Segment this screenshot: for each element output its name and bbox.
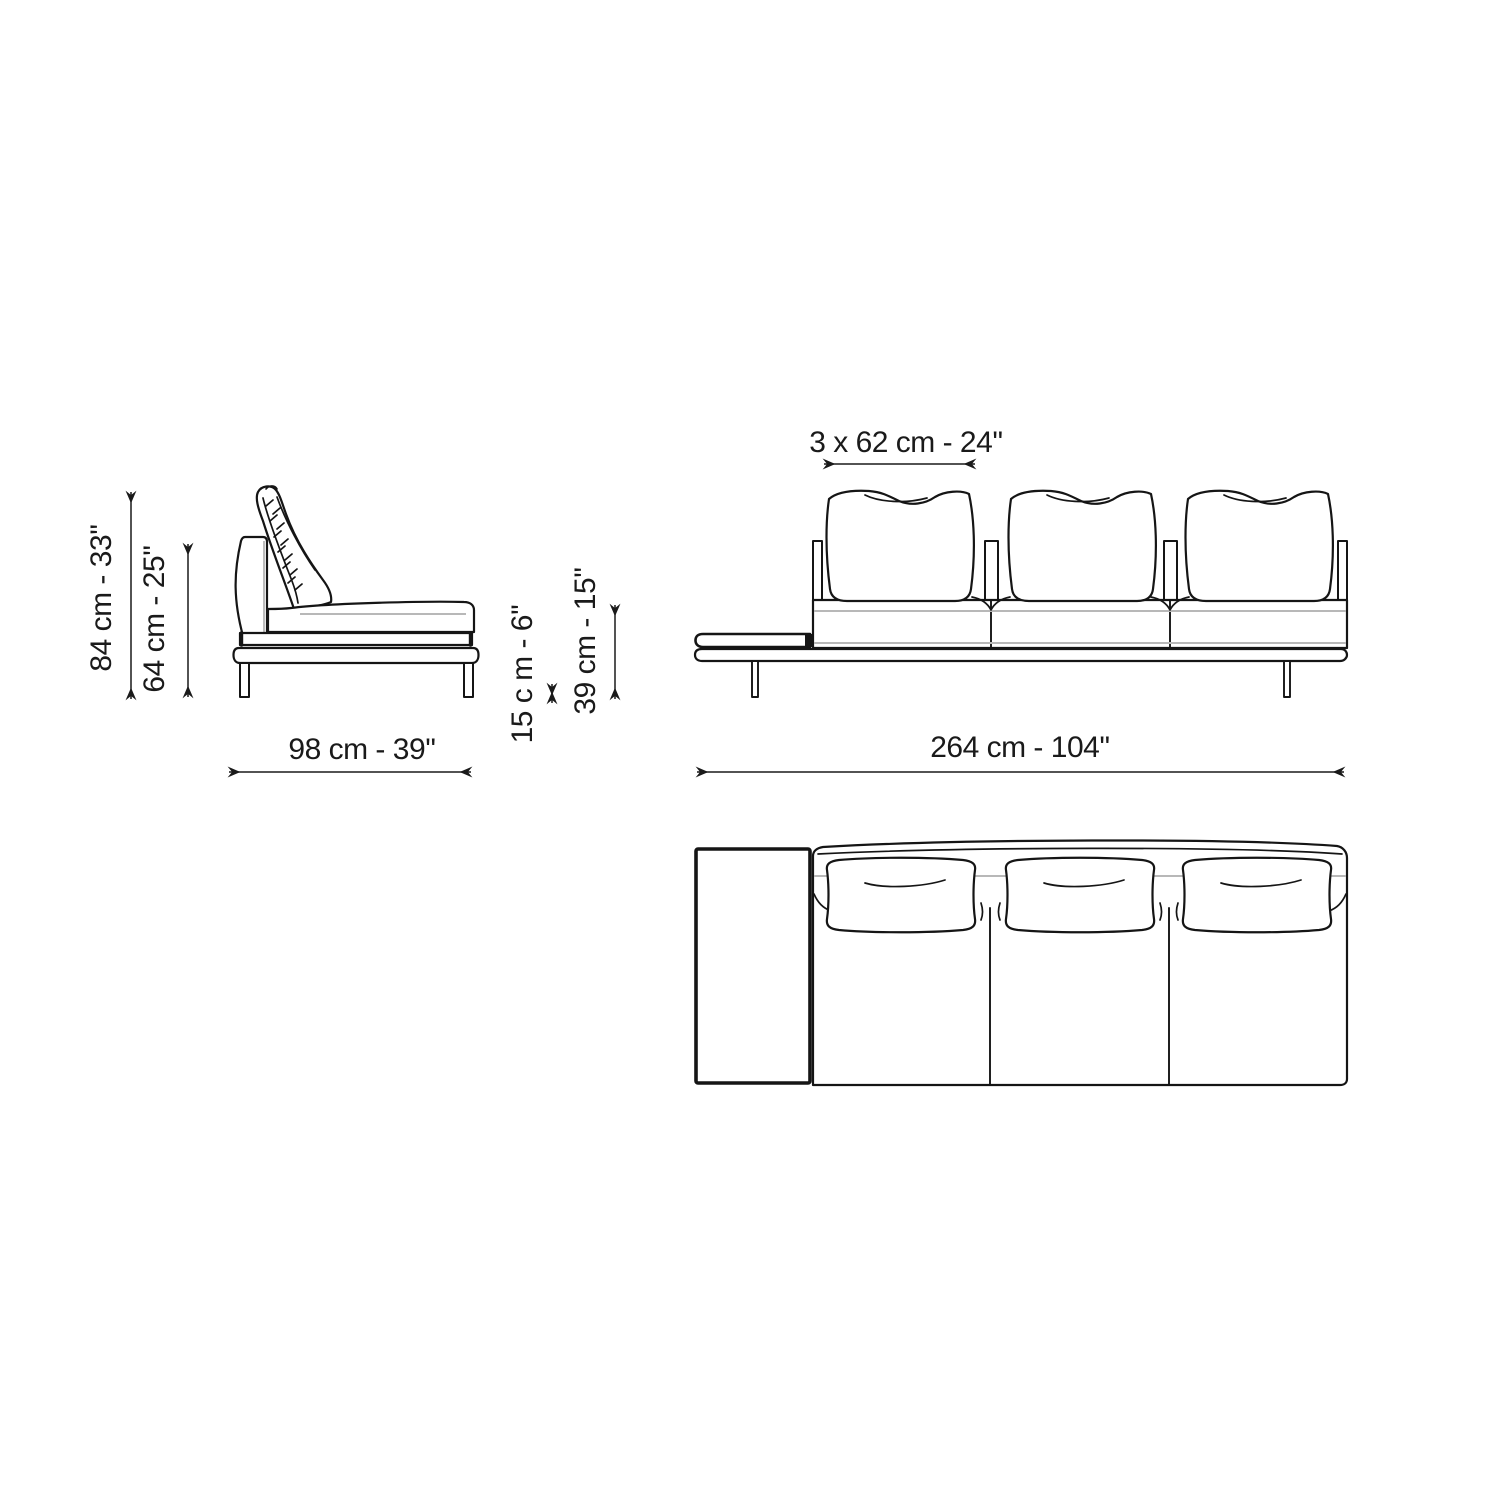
dim-label-shelf-height: 15 c m - 6'' — [506, 605, 539, 744]
side-right-leg — [464, 663, 473, 697]
front-seat-base — [813, 600, 1347, 648]
front-table-top-cap — [805, 634, 812, 647]
front-left-leg — [752, 661, 758, 697]
front-table-top — [696, 634, 811, 647]
top-view-drawing — [696, 840, 1347, 1085]
sofa-dimension-diagram-page: 84 cm - 33'' 64 cm - 25'' 98 cm - 39'' 1… — [0, 0, 1500, 1500]
side-view-drawing — [234, 486, 479, 697]
side-base-platform — [240, 633, 472, 645]
front-cushion-1 — [827, 491, 974, 601]
top-side-shelf — [696, 849, 810, 1083]
front-right-leg — [1284, 661, 1290, 697]
side-back-panel — [236, 537, 267, 636]
side-left-leg — [240, 663, 249, 697]
front-back-cushions — [827, 491, 1333, 610]
dim-label-depth: 98 cm - 39'' — [288, 733, 435, 766]
front-cushion-3 — [1186, 491, 1333, 601]
dim-label-total-height: 84 cm - 33'' — [85, 524, 118, 671]
front-cushion-2 — [1009, 491, 1156, 601]
diagram-canvas: 84 cm - 33'' 64 cm - 25'' 98 cm - 39'' 1… — [0, 0, 1500, 1500]
top-cushion-2 — [1006, 858, 1154, 933]
front-frame-right-post — [1338, 541, 1347, 602]
top-back-cushions — [827, 858, 1331, 933]
dim-label-total-width: 264 cm - 104'' — [930, 731, 1110, 764]
front-frame-left-post — [813, 541, 822, 601]
top-cushion-1 — [827, 858, 975, 933]
dim-label-back-height: 64 cm - 25'' — [138, 545, 171, 692]
side-base-rail — [234, 648, 479, 663]
front-frame-gap-post-2 — [1164, 541, 1177, 601]
top-cushion-3 — [1183, 858, 1331, 933]
dim-label-seat-height: 39 cm - 15'' — [569, 567, 602, 714]
front-base-rail — [695, 649, 1347, 661]
front-frame-gap-post-1 — [985, 541, 998, 601]
dim-label-cushion-width: 3 x 62 cm - 24'' — [809, 426, 1003, 459]
front-view-drawing — [695, 491, 1347, 697]
side-seat-cushion — [268, 602, 474, 632]
